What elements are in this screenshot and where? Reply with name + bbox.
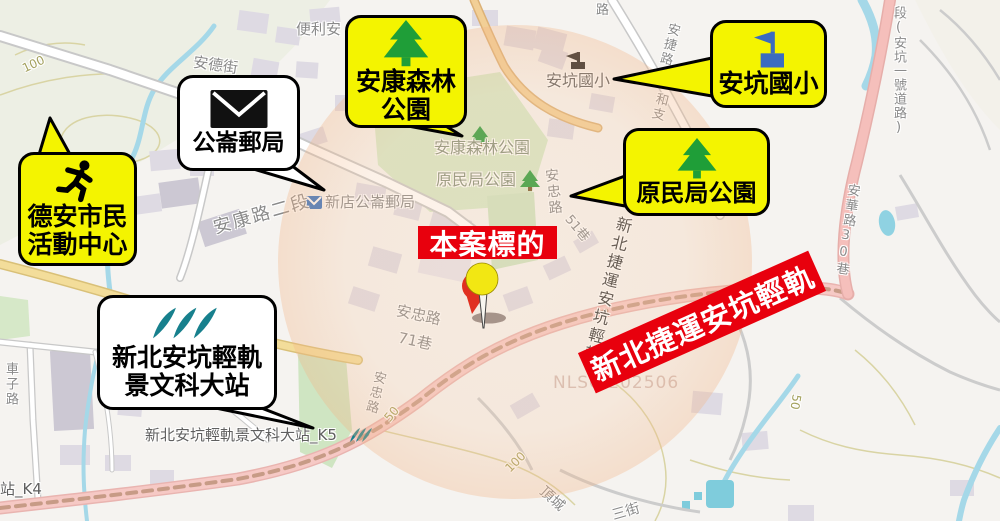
metro-logo-icon	[151, 306, 223, 340]
callout-lrt-station: 新北安坑輕軌 景文科大站	[97, 295, 277, 410]
callout-label: 原民局公園	[637, 180, 757, 207]
callout-forest-park: 安康森林 公園	[345, 15, 467, 128]
running-person-icon	[55, 159, 101, 203]
subject-property-label: 本案標的	[418, 226, 557, 259]
callout-label: 安坑國小	[718, 70, 818, 98]
callout-label: 安康森林	[356, 68, 456, 96]
callout-post-office: 公崙郵局	[177, 75, 300, 171]
callout-label: 德安市民	[27, 203, 127, 231]
callout-label: 公園	[381, 96, 431, 124]
map-canvas: 100 便利安 安德街 安康路二段 新店公崙郵局 安康森林公園 原民局公園 安坑…	[0, 0, 1000, 521]
callout-community-center: 德安市民 活動中心	[18, 152, 137, 266]
callout-elementary-school: 安坑國小	[710, 20, 827, 108]
envelope-icon	[210, 90, 268, 128]
callout-aboriginal-park: 原民局公園	[623, 128, 770, 216]
callout-label: 活動中心	[27, 231, 127, 259]
pine-tree-icon	[378, 20, 434, 68]
callout-label: 新北安坑輕軌	[112, 344, 262, 372]
callout-label: 景文科大站	[124, 372, 249, 400]
callout-label: 公崙郵局	[193, 131, 285, 157]
school-flag-icon	[747, 30, 791, 70]
subject-map-pin-icon	[450, 256, 520, 336]
pine-tree-icon	[672, 138, 722, 180]
